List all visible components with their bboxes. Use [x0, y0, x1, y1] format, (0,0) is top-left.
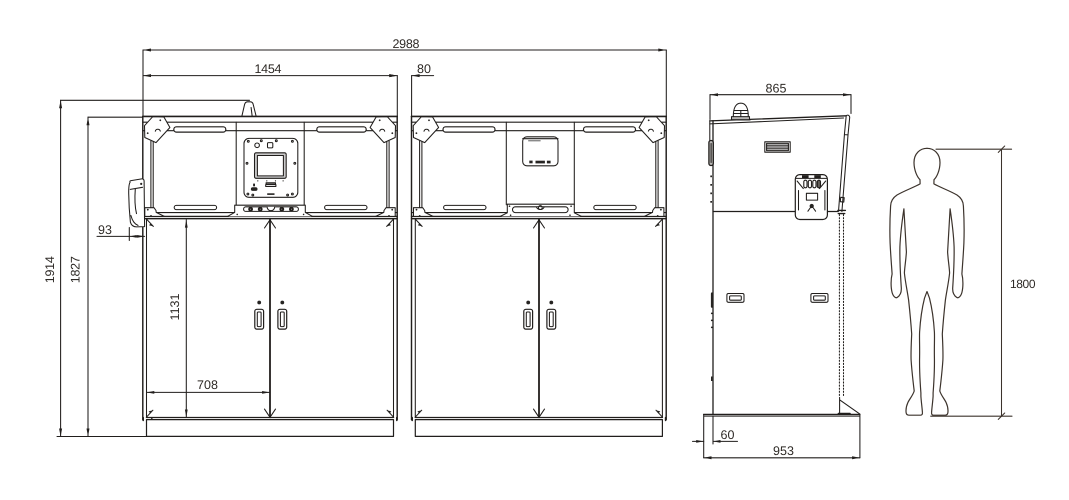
svg-text:1800: 1800 — [1010, 277, 1036, 291]
svg-text:60: 60 — [721, 428, 735, 442]
svg-text:1131: 1131 — [168, 293, 182, 320]
svg-text:1454: 1454 — [255, 62, 282, 76]
svg-text:953: 953 — [773, 444, 794, 458]
svg-text:1914: 1914 — [43, 256, 57, 283]
svg-text:80: 80 — [417, 62, 431, 76]
svg-text:708: 708 — [197, 378, 218, 392]
svg-text:1827: 1827 — [69, 256, 83, 283]
svg-text:93: 93 — [98, 223, 112, 237]
svg-text:2988: 2988 — [393, 37, 420, 51]
svg-text:865: 865 — [766, 82, 787, 96]
